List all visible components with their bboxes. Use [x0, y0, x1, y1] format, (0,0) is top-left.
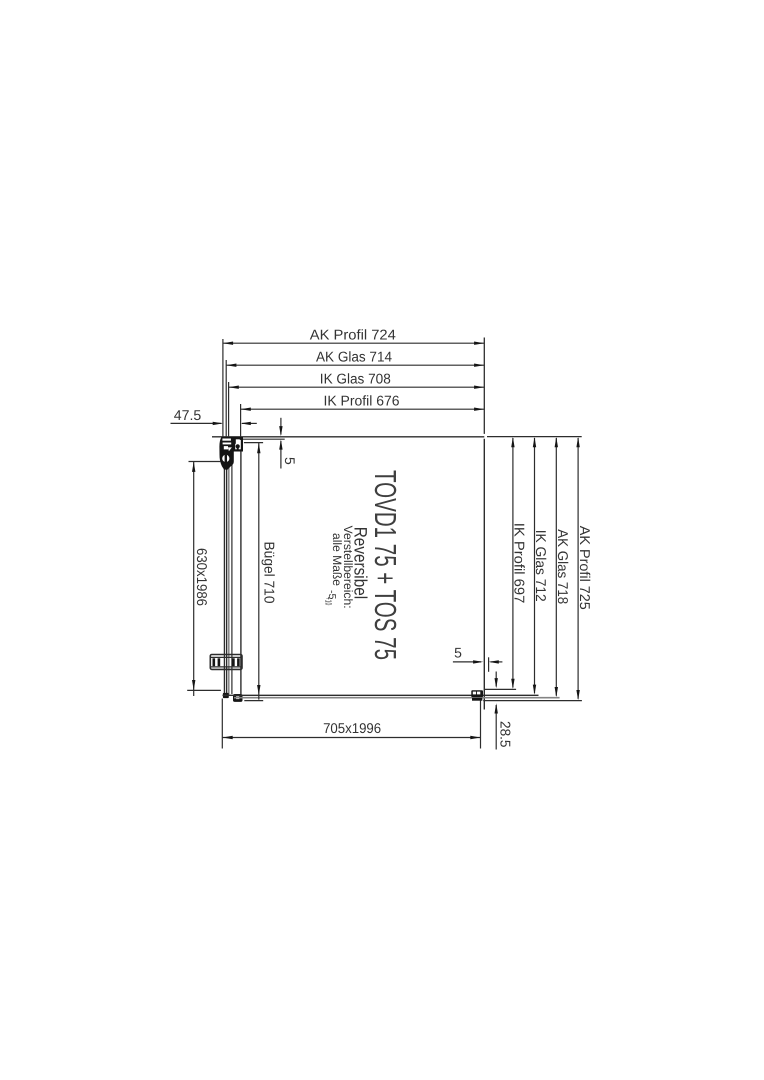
svg-text:IK Glas 708: IK Glas 708	[320, 371, 391, 387]
svg-text:IK Profil 676: IK Profil 676	[324, 393, 400, 409]
svg-text:Bügel 710: Bügel 710	[261, 542, 277, 604]
svg-text:TOVD1 75 + TOS 75: TOVD1 75 + TOS 75	[368, 470, 402, 660]
svg-text:AK Profil 725: AK Profil 725	[576, 526, 592, 610]
svg-text:705x1996: 705x1996	[323, 721, 381, 737]
svg-text:28.5: 28.5	[497, 721, 513, 748]
svg-text:AK Glas 714: AK Glas 714	[316, 349, 392, 365]
svg-text:AK Profil 724: AK Profil 724	[310, 328, 396, 344]
svg-text:AK Glas 718: AK Glas 718	[554, 529, 570, 604]
svg-text:IK Profil 697: IK Profil 697	[511, 523, 527, 604]
svg-text:5: 5	[454, 645, 462, 661]
svg-text:+10: +10	[324, 597, 334, 606]
svg-text:IK Glas 712: IK Glas 712	[532, 530, 548, 602]
svg-text:5: 5	[282, 457, 298, 465]
svg-text:alle Maße: alle Maße	[330, 533, 344, 586]
svg-text:47.5: 47.5	[174, 408, 202, 424]
svg-text:630x1986: 630x1986	[193, 548, 209, 606]
